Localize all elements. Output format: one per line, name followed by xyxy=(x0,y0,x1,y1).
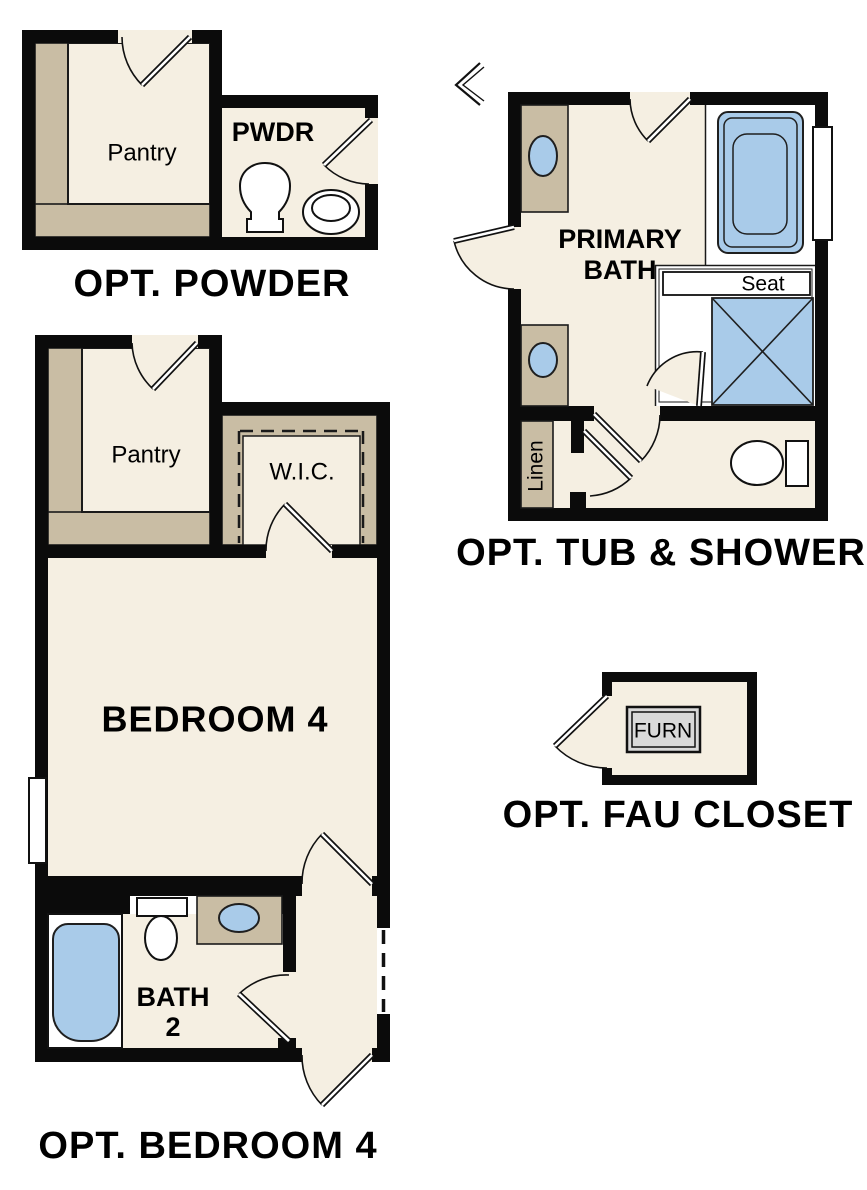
opt-powder-caption: OPT. POWDER xyxy=(73,263,350,305)
furn-label: FURN xyxy=(634,720,692,743)
primary-bath-label-line2: BATH xyxy=(584,255,657,285)
linen-label: Linen xyxy=(525,440,548,491)
chevron-door-leaf-icon xyxy=(456,63,484,105)
sink-icon-bottom xyxy=(529,343,557,377)
bath2-label-line2: 2 xyxy=(165,1012,180,1042)
shower-icon xyxy=(712,298,813,405)
opt-bedroom4-caption: OPT. BEDROOM 4 xyxy=(38,1125,377,1167)
pantry-label: Pantry xyxy=(107,140,176,167)
bedroom4-label: BEDROOM 4 xyxy=(101,699,328,740)
floor-plan-sheet: Pantry PWDR OPT. POWDER xyxy=(0,0,867,1190)
primary-bath-label-line1: PRIMARY xyxy=(558,224,682,254)
bath-window xyxy=(813,127,832,240)
floor-plan-options-drawing: Pantry PWDR OPT. POWDER xyxy=(0,0,867,1190)
powder-room-label: PWDR xyxy=(232,117,315,147)
hall-exit-door xyxy=(302,1055,372,1105)
fau-door xyxy=(555,696,607,768)
bathtub-icon xyxy=(718,112,803,253)
opt-fau-closet-caption: OPT. FAU CLOSET xyxy=(503,794,854,836)
bedroom-window xyxy=(29,778,46,863)
wic-label: W.I.C. xyxy=(269,459,334,486)
pantry-shelf-bottom xyxy=(35,204,210,237)
bath2-label-line1: BATH xyxy=(137,982,210,1012)
plan-opt-fau-closet: FURN OPT. FAU CLOSET xyxy=(503,672,854,836)
toilet-icon xyxy=(303,190,359,234)
pantry2-shelf-bottom xyxy=(48,512,210,545)
pantry2-label: Pantry xyxy=(111,442,180,469)
shower-seat xyxy=(663,272,810,295)
plan-opt-tub-shower: PRIMARY BATH Seat Linen OPT. TUB & SHOWE… xyxy=(454,63,866,574)
plan-opt-bedroom4: Pantry W.I.C. BEDROOM 4 BATH 2 OPT. BEDR… xyxy=(29,335,390,1167)
wc-toilet-icon xyxy=(731,441,808,486)
sink-icon-top xyxy=(529,136,557,176)
bath-side-door xyxy=(454,227,514,289)
sink-icon-bath2 xyxy=(219,904,259,932)
pedestal-sink-icon xyxy=(240,163,290,232)
opt-tub-shower-caption: OPT. TUB & SHOWER xyxy=(456,532,866,574)
bathtub2-icon xyxy=(53,924,119,1041)
hall-cased-opening xyxy=(377,928,390,1014)
plan-opt-powder: Pantry PWDR OPT. POWDER xyxy=(22,30,378,305)
hall-floor xyxy=(296,896,377,1048)
seat-label: Seat xyxy=(741,273,784,296)
